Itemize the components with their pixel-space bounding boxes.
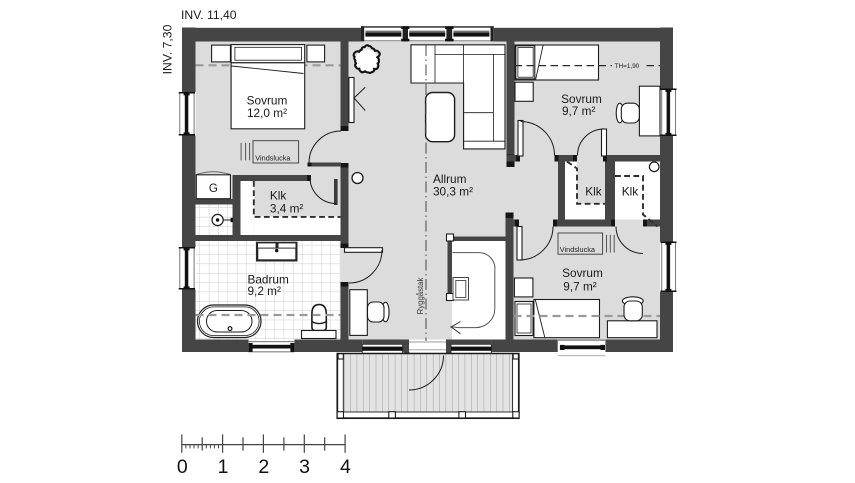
svg-text:Sovrum: Sovrum [562, 266, 603, 280]
svg-text:0: 0 [177, 456, 188, 478]
svg-text:INV. 7,30: INV. 7,30 [161, 24, 175, 74]
svg-text:3: 3 [299, 456, 310, 478]
svg-text:TH=1,90: TH=1,90 [615, 63, 640, 70]
svg-text:9,7 m²: 9,7 m² [562, 104, 596, 118]
svg-text:Ryggåstak: Ryggåstak [416, 277, 425, 314]
svg-text:INV. 11,40: INV. 11,40 [181, 8, 237, 22]
svg-text:G: G [209, 183, 218, 195]
svg-text:9,7 m²: 9,7 m² [563, 279, 597, 293]
svg-text:Klk: Klk [270, 188, 286, 202]
svg-text:Klk: Klk [585, 185, 601, 199]
svg-text:Vindslucka: Vindslucka [255, 153, 291, 162]
svg-text:Vindslucka: Vindslucka [560, 245, 596, 254]
svg-text:4: 4 [340, 456, 351, 478]
svg-text:3,4 m²: 3,4 m² [270, 202, 304, 216]
svg-text:9,2 m²: 9,2 m² [248, 284, 282, 298]
svg-text:1: 1 [218, 456, 229, 478]
svg-text:2: 2 [258, 456, 269, 478]
svg-text:12,0 m²: 12,0 m² [247, 106, 287, 120]
svg-text:30,3 m²: 30,3 m² [433, 185, 473, 199]
svg-text:Klk: Klk [622, 185, 638, 199]
